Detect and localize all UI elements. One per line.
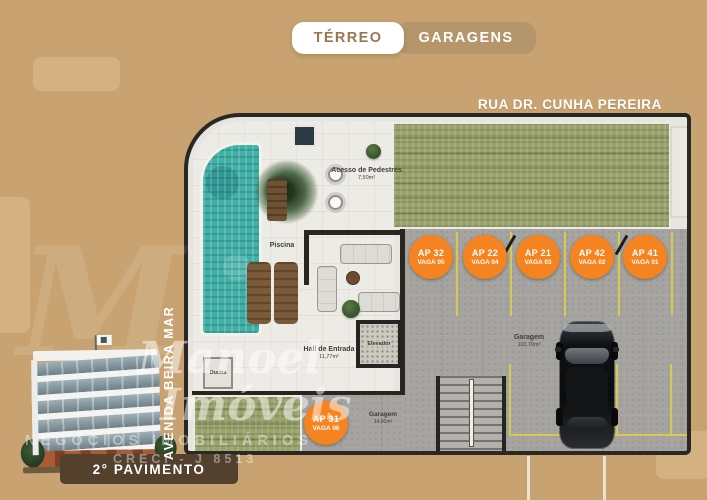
shower-label: Ducha — [210, 370, 227, 376]
car-windshield — [565, 348, 609, 364]
tab-garagens[interactable]: GARAGENS — [396, 22, 536, 54]
deck-bench — [267, 179, 287, 221]
staircase — [436, 376, 506, 455]
sofa — [358, 292, 400, 312]
decor-block — [0, 197, 30, 333]
wall — [192, 391, 404, 395]
parking-badge: AP 21 VAGA 03 — [516, 235, 560, 279]
decor-block — [33, 57, 120, 91]
pedestrian-access-label: Acesso de Pedestres 7,50m² — [319, 167, 414, 182]
garage-label: Garagem 110,70m² — [499, 334, 559, 349]
car-wheel — [556, 408, 563, 426]
sidewalk-strip — [670, 126, 691, 218]
flag-logo — [101, 337, 107, 343]
parking-line — [671, 232, 673, 316]
bistro-table — [328, 195, 343, 210]
landscaping-strip — [392, 122, 671, 229]
floor-plan: Ducha Acesso de Pedestres 7,50m² Piscina… — [184, 113, 691, 455]
tab-terreo[interactable]: TÉRREO — [292, 22, 404, 54]
parking-line — [509, 364, 511, 436]
parking-badge: AP 32 VAGA 05 — [409, 235, 453, 279]
driveway-line — [527, 456, 530, 500]
pool-label: Piscina — [262, 242, 302, 250]
coffee-table — [346, 271, 360, 285]
car-rear-window — [567, 417, 607, 430]
wall — [304, 230, 309, 285]
car-hood — [563, 324, 611, 332]
stair-rail — [469, 379, 474, 447]
tab-terreo-label: TÉRREO — [314, 30, 383, 46]
floor-indicator-pill: 2° PAVIMENTO — [60, 454, 238, 484]
car-mirror — [555, 347, 561, 352]
parking-badge: AP 42 VAGA 02 — [570, 235, 614, 279]
parking-line — [670, 364, 672, 436]
elevator-shaft: Elevador — [356, 320, 402, 368]
tab-garagens-label: GARAGENS — [419, 30, 514, 46]
street-label-top: RUA DR. CUNHA PEREIRA — [410, 97, 662, 112]
sofa — [317, 266, 337, 312]
driveway-line — [603, 456, 606, 500]
elevator-label: Elevador — [366, 341, 391, 347]
parking-line — [456, 232, 458, 316]
street-label-left: AVENIDA BEIRA MAR — [162, 292, 182, 474]
shower-area: Ducha — [203, 357, 233, 389]
car-roof — [566, 367, 608, 414]
wall — [400, 229, 405, 395]
car-wheel — [611, 408, 618, 426]
building-tower — [31, 355, 161, 459]
flag — [97, 335, 112, 345]
plant — [342, 300, 360, 318]
parking-badge: AP 22 VAGA 04 — [463, 235, 507, 279]
parking-line — [564, 232, 566, 316]
car-mirror — [613, 347, 619, 352]
sun-lounger — [274, 262, 298, 324]
landscaping-bottom — [193, 395, 302, 455]
parking-badge: AP 41 VAGA 01 — [623, 235, 667, 279]
car-top-view — [560, 322, 614, 448]
parking-badge-ap31: AP 31 VAGA 06 — [304, 401, 348, 445]
sofa — [340, 244, 392, 264]
plant — [366, 144, 381, 159]
spa — [293, 125, 316, 147]
floor-indicator-label: 2° PAVIMENTO — [93, 462, 206, 477]
sun-lounger — [247, 262, 271, 324]
wall — [304, 230, 405, 235]
marketing-page: TÉRREO GARAGENS RUA DR. CUNHA PEREIRA AV… — [0, 0, 707, 500]
small-garage-label: Garagem 14,00m² — [354, 411, 412, 425]
